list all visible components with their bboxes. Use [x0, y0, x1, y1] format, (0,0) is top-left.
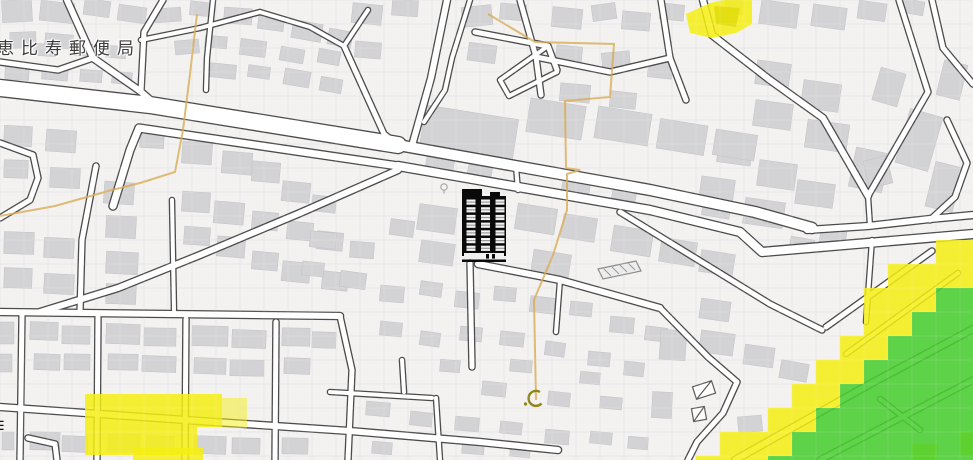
building-windows [467, 200, 505, 251]
map-viewport[interactable]: 恵比寿郵便局 ☰ [0, 0, 973, 460]
map-label-post-office: 恵比寿郵便局 [0, 34, 141, 59]
clipped-edge-label: ☰ [0, 419, 5, 432]
building-marker-icon[interactable] [462, 189, 506, 262]
map-canvas[interactable] [0, 0, 973, 460]
